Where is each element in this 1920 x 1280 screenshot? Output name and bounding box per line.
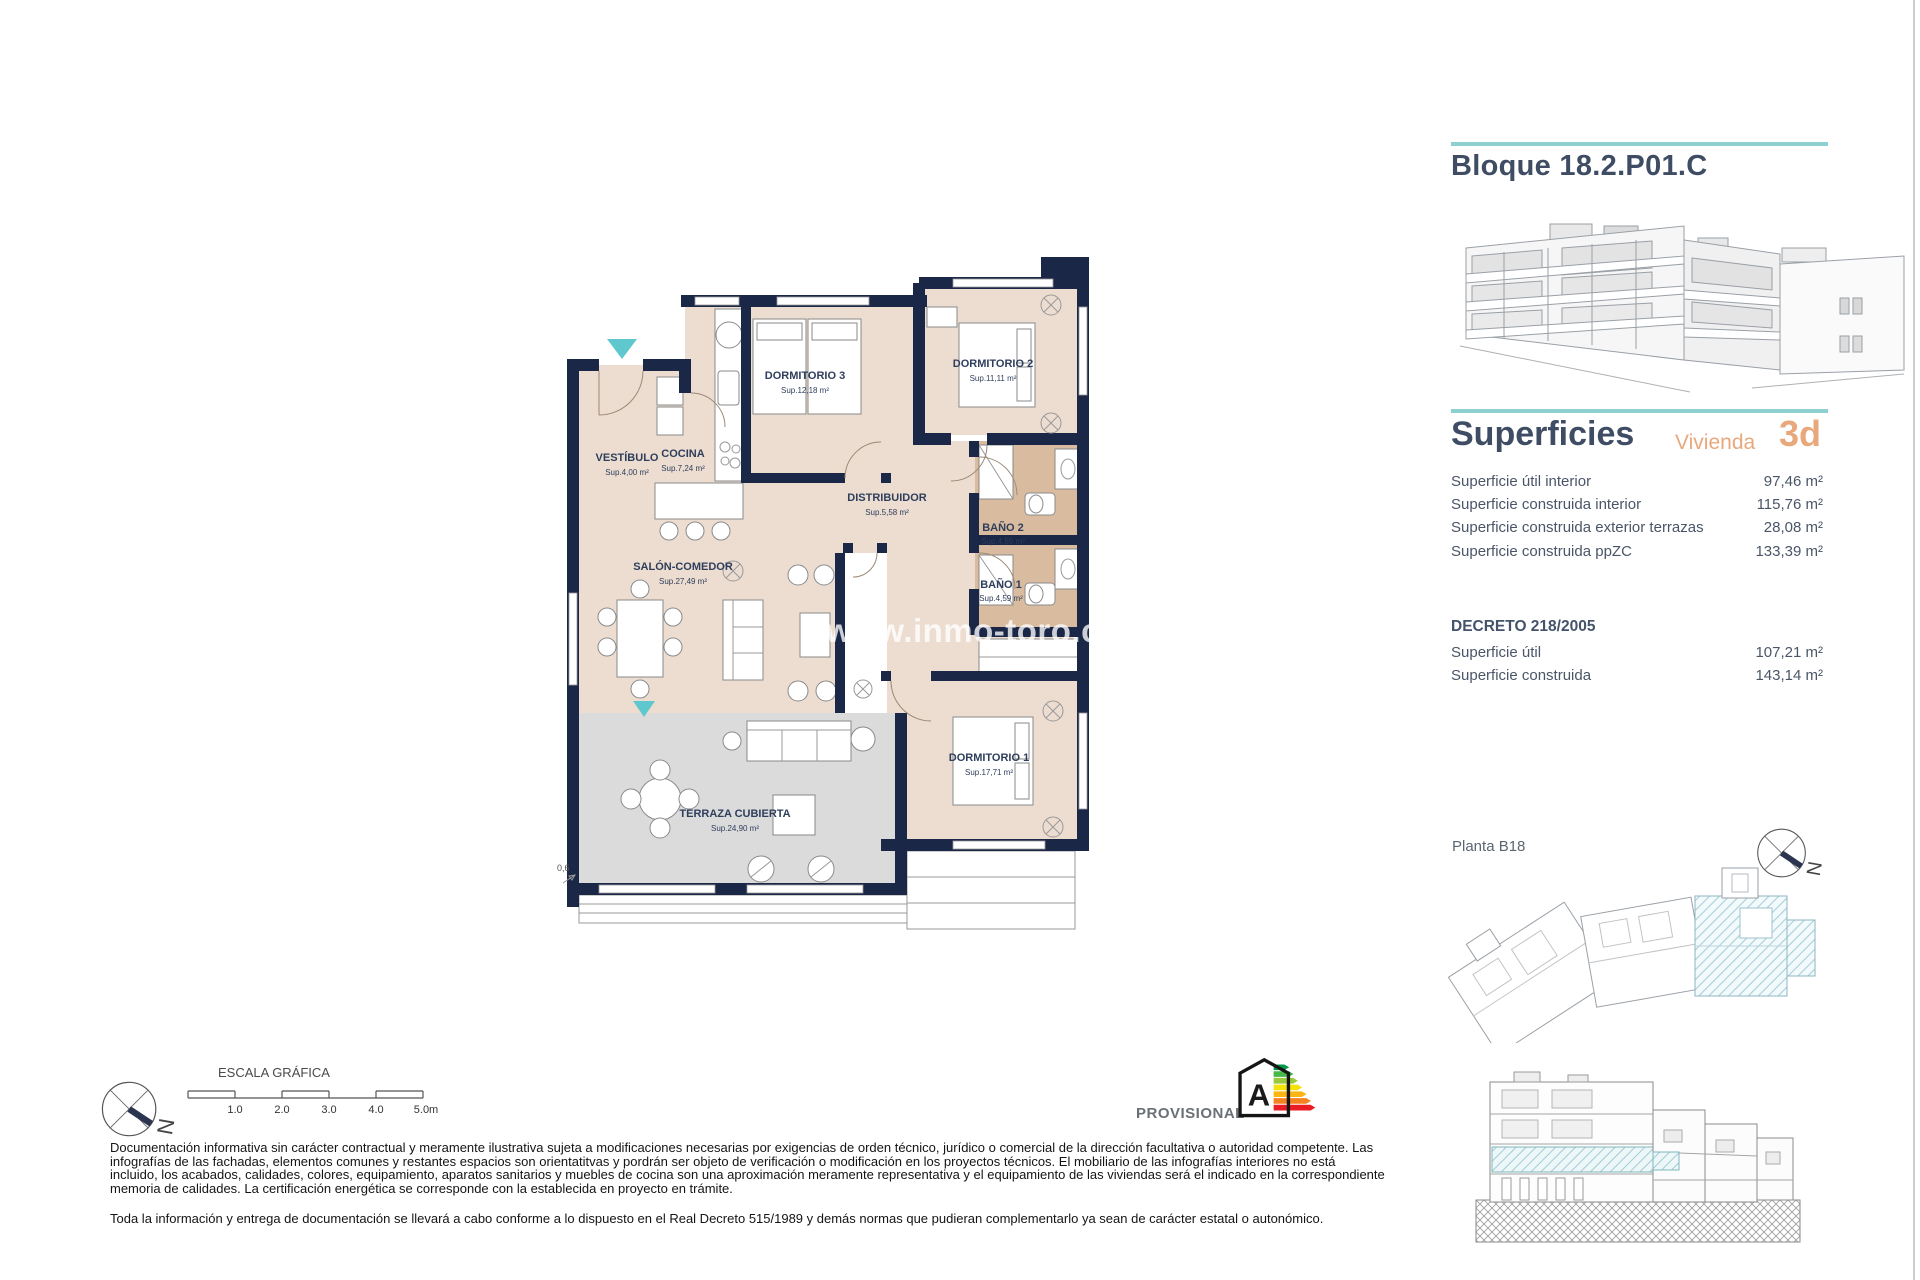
- room-sup-dorm3: Sup.12,18 m²: [781, 386, 829, 395]
- scale-tick-label: 4.0: [368, 1104, 383, 1116]
- superficies-title: Superficies: [1451, 415, 1634, 454]
- watermark: www.inmo-toro.com: [826, 612, 1150, 650]
- vivienda-label: Vivienda: [1675, 431, 1755, 455]
- row-label: Superficie útil: [1451, 641, 1541, 664]
- building-render: [1452, 198, 1916, 404]
- room-label-dorm3: DORMITORIO 3: [765, 370, 845, 382]
- table-row: Superficie construida ppZC 133,39 m²: [1451, 540, 1823, 563]
- disclaimer: Documentación informativa sin carácter c…: [110, 1141, 1386, 1243]
- scale-tick-label: 3.0: [321, 1104, 336, 1116]
- room-label-terraza: TERRAZA CUBIERTA: [679, 808, 790, 820]
- room-sup-vestibulo: Sup.4,00 m²: [605, 468, 649, 477]
- energy-rating-icon: A: [1236, 1054, 1318, 1122]
- room-label-distribuidor: DISTRIBUIDOR: [847, 492, 927, 504]
- table-row: Superficie útil 107,21 m²: [1451, 641, 1823, 664]
- page-edge-line: [1913, 0, 1915, 1280]
- divider-top: [1451, 142, 1828, 146]
- room-label-bano2: BAÑO 2: [982, 521, 1024, 534]
- room-label-bano1: BAÑO 1: [980, 578, 1022, 591]
- entry-marker-icon: [607, 339, 637, 359]
- row-label: Superficie útil interior: [1451, 470, 1591, 493]
- room-sup-distribuidor: Sup.5,58 m²: [865, 508, 909, 517]
- scale-title: ESCALA GRÁFICA: [218, 1065, 330, 1080]
- north-letter: N: [152, 1116, 179, 1136]
- room-label-dorm1: DORMITORIO 1: [949, 752, 1029, 764]
- scale-bar: 1.0 2.0 3.0 4.0 5.0m: [185, 1082, 455, 1120]
- room-label-dorm2: DORMITORIO 2: [953, 358, 1033, 370]
- room-label-cocina: COCINA: [661, 448, 704, 460]
- page-title: Bloque 18.2.P01.C: [1451, 150, 1708, 183]
- vivienda-code: 3d: [1779, 413, 1821, 455]
- room-sup-bano1: Sup.4,59 m²: [979, 594, 1023, 603]
- energy-letter: A: [1248, 1077, 1270, 1112]
- divider-superficies: [1451, 409, 1828, 413]
- table-row: Superficie construida interior 115,76 m²: [1451, 493, 1823, 516]
- scale-tick-label: 1.0: [227, 1104, 242, 1116]
- row-label: Superficie construida: [1451, 664, 1591, 687]
- plan-compass-icon: N: [96, 1072, 188, 1146]
- room-sup-terraza: Sup.24,90 m²: [711, 824, 759, 833]
- room-label-vestibulo: VESTÍBULO: [596, 451, 659, 464]
- room-sup-dorm2: Sup.11,11 m²: [970, 374, 1017, 383]
- floor-plan-sheet: 0,6 VESTÍBULO Sup.4,00 m² COCINA Sup.7,2…: [0, 0, 1920, 1280]
- scale-tick-label: 2.0: [274, 1104, 289, 1116]
- row-value: 97,46 m²: [1764, 470, 1823, 493]
- floor-plan-drawing: 0,6 VESTÍBULO Sup.4,00 m² COCINA Sup.7,2…: [555, 243, 1115, 963]
- row-value: 28,08 m²: [1764, 516, 1823, 539]
- disclaimer-paragraph-1: Documentación informativa sin carácter c…: [110, 1141, 1386, 1195]
- room-sup-bano2: Sup.4,59 m²: [981, 537, 1025, 546]
- row-value: 115,76 m²: [1757, 493, 1823, 516]
- dimension-label: 0,6: [557, 863, 570, 873]
- row-label: Superficie construida ppZC: [1451, 540, 1632, 563]
- row-label: Superficie construida interior: [1451, 493, 1641, 516]
- planta-label: Planta B18: [1452, 838, 1525, 855]
- decreto-table: Superficie útil 107,21 m² Superficie con…: [1451, 641, 1823, 687]
- room-label-salon: SALÓN-COMEDOR: [633, 560, 733, 573]
- superficies-table: Superficie útil interior 97,46 m² Superf…: [1451, 470, 1823, 563]
- provisional-label: PROVISIONAL: [1136, 1105, 1245, 1122]
- room-sup-dorm1: Sup.17,71 m²: [965, 768, 1013, 777]
- row-value: 107,21 m²: [1755, 641, 1823, 664]
- decreto-title: DECRETO 218/2005: [1451, 618, 1595, 636]
- row-value: 143,14 m²: [1755, 664, 1823, 687]
- site-plan: [1440, 858, 1840, 1043]
- table-row: Superficie construida 143,14 m²: [1451, 664, 1823, 687]
- section-drawing: [1472, 1052, 1817, 1262]
- room-sup-salon: Sup.27,49 m²: [659, 577, 707, 586]
- table-row: Superficie útil interior 97,46 m²: [1451, 470, 1823, 493]
- room-sup-cocina: Sup.7,24 m²: [661, 464, 705, 473]
- table-row: Superficie construida exterior terrazas …: [1451, 516, 1823, 539]
- row-label: Superficie construida exterior terrazas: [1451, 516, 1704, 539]
- scale-tick-label: 5.0m: [414, 1104, 438, 1116]
- disclaimer-paragraph-2: Toda la información y entrega de documen…: [110, 1212, 1386, 1226]
- row-value: 133,39 m²: [1755, 540, 1823, 563]
